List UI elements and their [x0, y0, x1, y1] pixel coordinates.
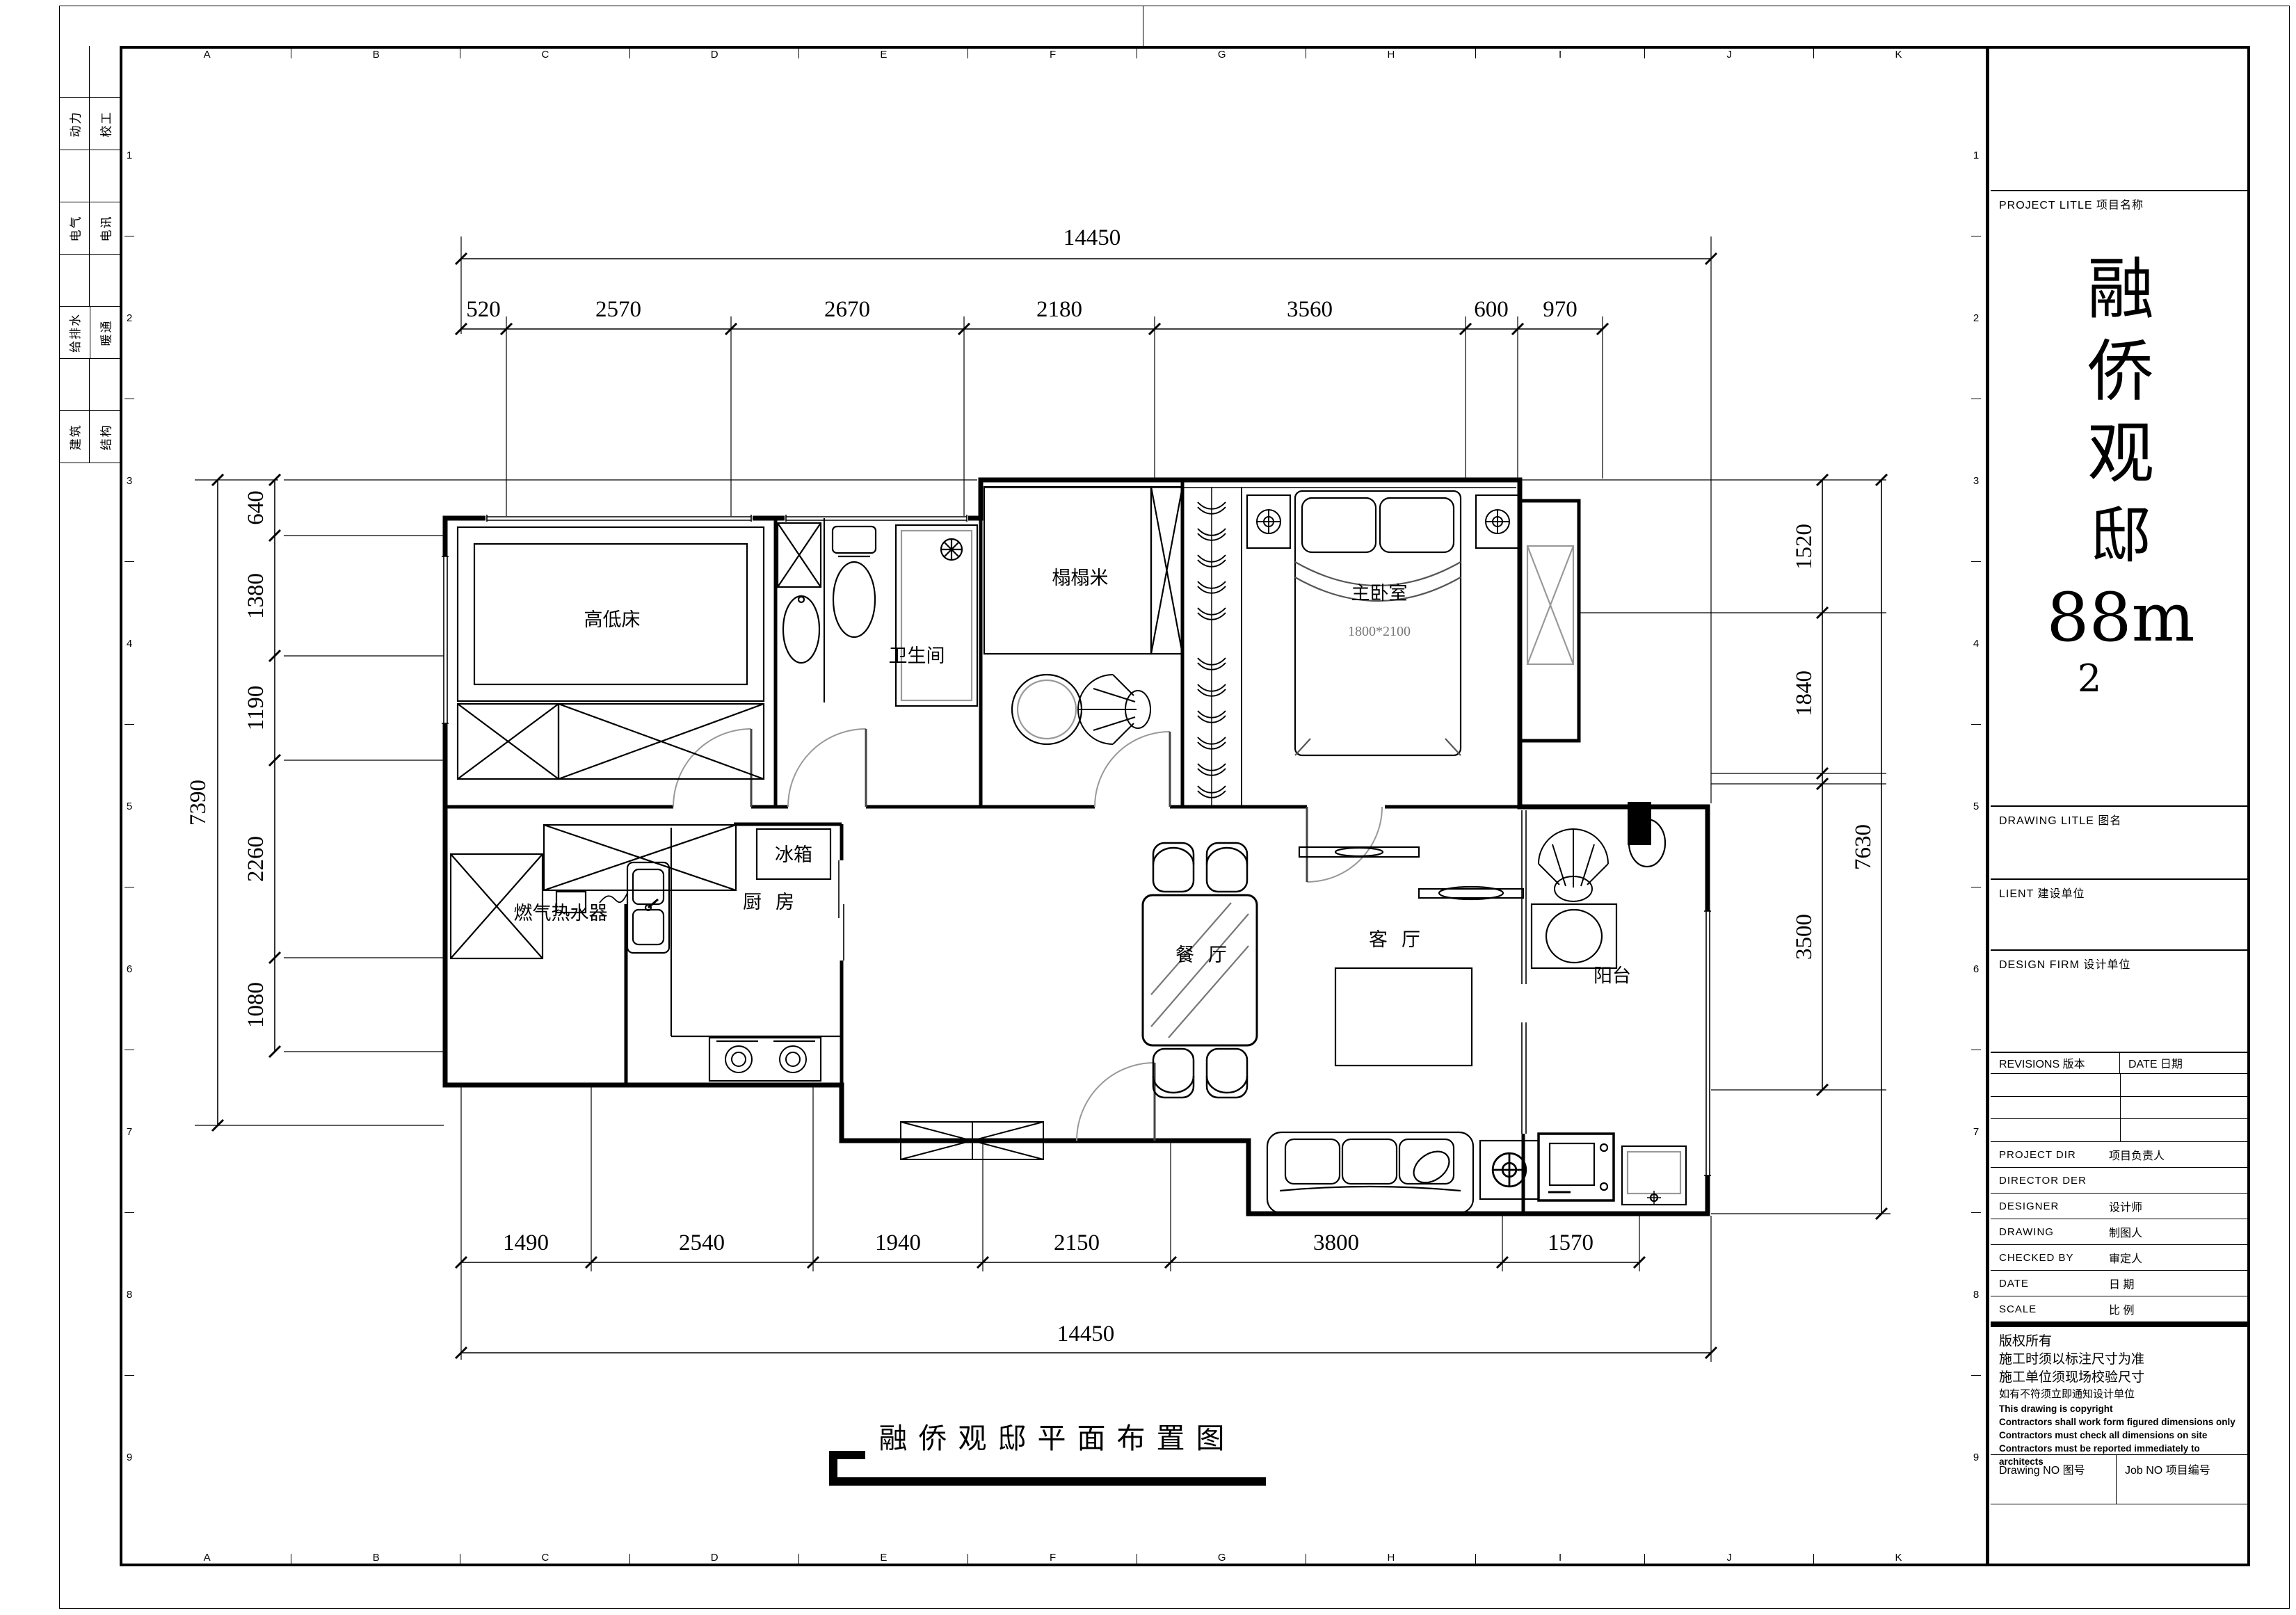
revisions-label: REVISIONS 版本: [1991, 1053, 2120, 1073]
signature-rows: PROJECT DIR 项目负责人 DIRECTOR DER DESIGNER …: [1991, 1141, 2249, 1321]
signature-row-en: DIRECTOR DER: [1999, 1175, 2109, 1187]
dim-text: 1080: [243, 982, 268, 1028]
dim-text: 7390: [186, 780, 211, 826]
dim-text: 2670: [824, 297, 870, 322]
label-bed-size: 1800*2100: [1348, 624, 1411, 639]
label-gas-heater: 燃气热水器: [514, 903, 608, 924]
dining-set: [1143, 843, 1257, 1098]
drawing-title-label: DRAWING LITLE 图名: [1999, 811, 2242, 828]
project-title-char: 邸: [2090, 495, 2151, 577]
project-title-char: 观: [2087, 412, 2154, 495]
door-arc-bath: [788, 729, 866, 807]
door-arc-master: [1307, 807, 1382, 882]
copyright-block: 版权所有施工时须以标注尺寸为准施工单位须现场校验尺寸如有不符须立即通知设计单位T…: [1991, 1327, 2249, 1454]
dim-text: 1490: [503, 1230, 549, 1255]
tv-cabinet: [1539, 1134, 1614, 1200]
label-living: 客厅: [1369, 929, 1434, 950]
balcony-glass-wall: [1522, 810, 1526, 1134]
dim-left-overall: [195, 474, 444, 1131]
signature-row: SCALE 比 例: [1991, 1296, 2249, 1321]
signature-row-en: SCALE: [1999, 1303, 2109, 1315]
dim-text: 2570: [595, 297, 641, 322]
dim-text: 2150: [1054, 1230, 1100, 1255]
bath-vanity: [778, 518, 824, 702]
signature-row-en: CHECKED BY: [1999, 1252, 2109, 1264]
label-kitchen: 厨房: [743, 892, 808, 913]
design-firm-label: DESIGN FIRM 设计单位: [1999, 955, 2242, 972]
wall-pier: [1628, 802, 1651, 845]
dim-text: 7630: [1851, 824, 1876, 870]
number-row: Drawing NO 图号 Job NO 项目编号: [1991, 1454, 2249, 1504]
signature-row-cn: 制图人: [2109, 1223, 2142, 1240]
signature-row: DESIGNER 设计师: [1991, 1193, 2249, 1219]
child-wardrobe: [458, 704, 764, 779]
dim-text: 3800: [1313, 1230, 1359, 1255]
copyright-line: Contractors must check all dimensions on…: [1999, 1429, 2244, 1442]
copyright-line: 施工时须以标注尺寸为准: [1999, 1351, 2244, 1369]
door-arc-child: [673, 729, 751, 807]
caption-text: 融侨观邸平面布置图: [879, 1422, 1236, 1454]
project-title-char: 侨: [2087, 330, 2154, 412]
label-child-room: 高低床: [584, 609, 641, 630]
window-child-left: [442, 556, 449, 723]
copyright-line: This drawing is copyright: [1999, 1402, 2244, 1415]
client-label: LIENT 建设单位: [1999, 884, 2242, 901]
floor-plan: 高低床 卫生间 榻榻米 主卧室 1800*2100 餐厅 厨房 冰箱 客厅 阳台…: [0, 0, 2296, 1615]
label-bathroom: 卫生间: [889, 645, 945, 666]
dim-text: 14450: [1057, 1321, 1115, 1347]
room-labels: 高低床 卫生间 榻榻米 主卧室 1800*2100 餐厅 厨房 冰箱 客厅 阳台…: [514, 568, 1632, 986]
tea-table: [1012, 675, 1150, 744]
sofa: [1267, 1132, 1473, 1213]
closet-bump-wall: [1520, 501, 1579, 741]
label-master: 主卧室: [1351, 583, 1408, 604]
copyright-line: 如有不符须立即通知设计单位: [1999, 1387, 2244, 1402]
walls: [445, 480, 1708, 1214]
dim-text: 1190: [243, 686, 268, 731]
label-fridge: 冰箱: [775, 844, 812, 865]
signature-row: DRAWING 制图人: [1991, 1219, 2249, 1244]
revision-row: [1991, 1096, 2249, 1119]
doors: [673, 729, 1382, 1141]
dim-text: 2540: [679, 1230, 725, 1255]
door-arc-entry: [1077, 1063, 1155, 1141]
dim-left-chain: [269, 474, 977, 1057]
drawing-title-section: DRAWING LITLE 图名: [1991, 805, 2249, 878]
label-dining: 餐厅: [1175, 945, 1241, 965]
washing-machine: [1622, 1146, 1686, 1205]
copyright-line: Contractors shall work form figured dime…: [1999, 1415, 2244, 1429]
signature-row-cn: 项目负责人: [2109, 1146, 2165, 1163]
dim-text: 640: [243, 490, 268, 525]
dim-text: 1520: [1792, 524, 1817, 570]
signature-row-en: DESIGNER: [1999, 1200, 2109, 1212]
project-title-char: 融: [2087, 248, 2154, 330]
kitchen-sink: [627, 862, 669, 953]
signature-row-cn: 设计师: [2109, 1198, 2142, 1214]
drawing-sheet: 动力 校工 电气 电讯 给排水 暖通: [0, 0, 2296, 1615]
revision-row: [1991, 1073, 2249, 1096]
dim-text: 3560: [1287, 297, 1333, 322]
design-firm-section: DESIGN FIRM 设计单位: [1991, 949, 2249, 1052]
titleblock-blank-bottom: [1991, 1504, 2249, 1566]
signature-row: CHECKED BY 审定人: [1991, 1244, 2249, 1270]
signature-row-en: PROJECT DIR: [1999, 1149, 2109, 1161]
signature-row-cn: 审定人: [2109, 1249, 2142, 1266]
dim-bottom-chain: [456, 1087, 1645, 1360]
project-title-char: 88m: [2046, 577, 2194, 659]
dim-text: 1940: [875, 1230, 921, 1255]
dim-text: 2260: [243, 836, 268, 882]
dim-text: 600: [1474, 297, 1509, 322]
signature-row-cn: 比 例: [2109, 1301, 2134, 1317]
project-title-label: PROJECT LITLE 项目名称: [1999, 195, 2242, 212]
dressing-table: [1532, 829, 1616, 968]
kitchen-sliding-door: [839, 860, 844, 961]
window-bath-top: [785, 515, 968, 522]
copyright-line: 施工单位须现场校验尺寸: [1999, 1369, 2244, 1387]
toilet: [833, 527, 876, 637]
titleblock-thick-divider: [1991, 1321, 2249, 1327]
window-child-top: [485, 515, 753, 522]
copyright-line: 版权所有: [1999, 1333, 2244, 1351]
dim-text: 2180: [1036, 297, 1082, 322]
nightstand-right: [1476, 495, 1519, 548]
caption-underline: [829, 1477, 1266, 1486]
dim-text: 1570: [1548, 1230, 1593, 1255]
stove: [709, 1038, 821, 1081]
gas-heater-leader: [600, 893, 627, 903]
signature-row: DIRECTOR DER: [1991, 1167, 2249, 1193]
sofa-side-table: [1480, 1141, 1539, 1199]
living-rug: [1335, 968, 1472, 1066]
console-table: [1299, 847, 1419, 857]
titleblock-blank: [1991, 46, 2249, 190]
dim-text: 1380: [243, 573, 268, 619]
signature-row: PROJECT DIR 项目负责人: [1991, 1141, 2249, 1167]
dim-text: 520: [466, 297, 501, 322]
dim-text: 3500: [1792, 914, 1817, 960]
window-balcony-right: [1704, 911, 1711, 1175]
ac-shaft: [1527, 546, 1573, 664]
furniture: [451, 487, 1686, 1213]
signature-row-cn: 日 期: [2109, 1275, 2134, 1292]
revision-row: [1991, 1118, 2249, 1141]
shower-stall: [896, 525, 977, 706]
label-balcony: 阳台: [1593, 965, 1631, 986]
dim-text: 1840: [1792, 670, 1817, 716]
nightstand-left: [1247, 495, 1290, 548]
console-table-2: [1419, 887, 1523, 899]
wardrobe-hangers: [1198, 487, 1226, 807]
signature-row: DATE 日 期: [1991, 1270, 2249, 1296]
dim-text: 970: [1543, 297, 1578, 322]
revision-date-label: DATE 日期: [2120, 1053, 2183, 1073]
double-bed: [1295, 491, 1461, 755]
label-tatami: 榻榻米: [1052, 568, 1109, 588]
client-section: LIENT 建设单位: [1991, 878, 2249, 949]
signature-row-en: DRAWING: [1999, 1226, 2109, 1238]
job-no-label: Job NO 项目编号: [2117, 1455, 2210, 1504]
project-section: PROJECT LITLE 项目名称 融侨观邸88m2: [1991, 190, 2249, 805]
revisions-table: REVISIONS 版本 DATE 日期: [1991, 1052, 2249, 1141]
dim-text: 14450: [1063, 225, 1121, 250]
plan-caption: 融侨观邸平面布置图: [829, 1422, 1266, 1486]
project-title: 融侨观邸88m2: [1999, 248, 2242, 699]
exterior-wall: [445, 480, 1708, 1214]
signature-row-en: DATE: [1999, 1278, 2109, 1289]
project-title-char: 2: [2078, 659, 2101, 699]
hall-storage: [451, 825, 736, 958]
drawing-no-label: Drawing NO 图号: [1991, 1455, 2117, 1504]
title-block: PROJECT LITLE 项目名称 融侨观邸88m2 DRAWING LITL…: [1991, 46, 2250, 1566]
